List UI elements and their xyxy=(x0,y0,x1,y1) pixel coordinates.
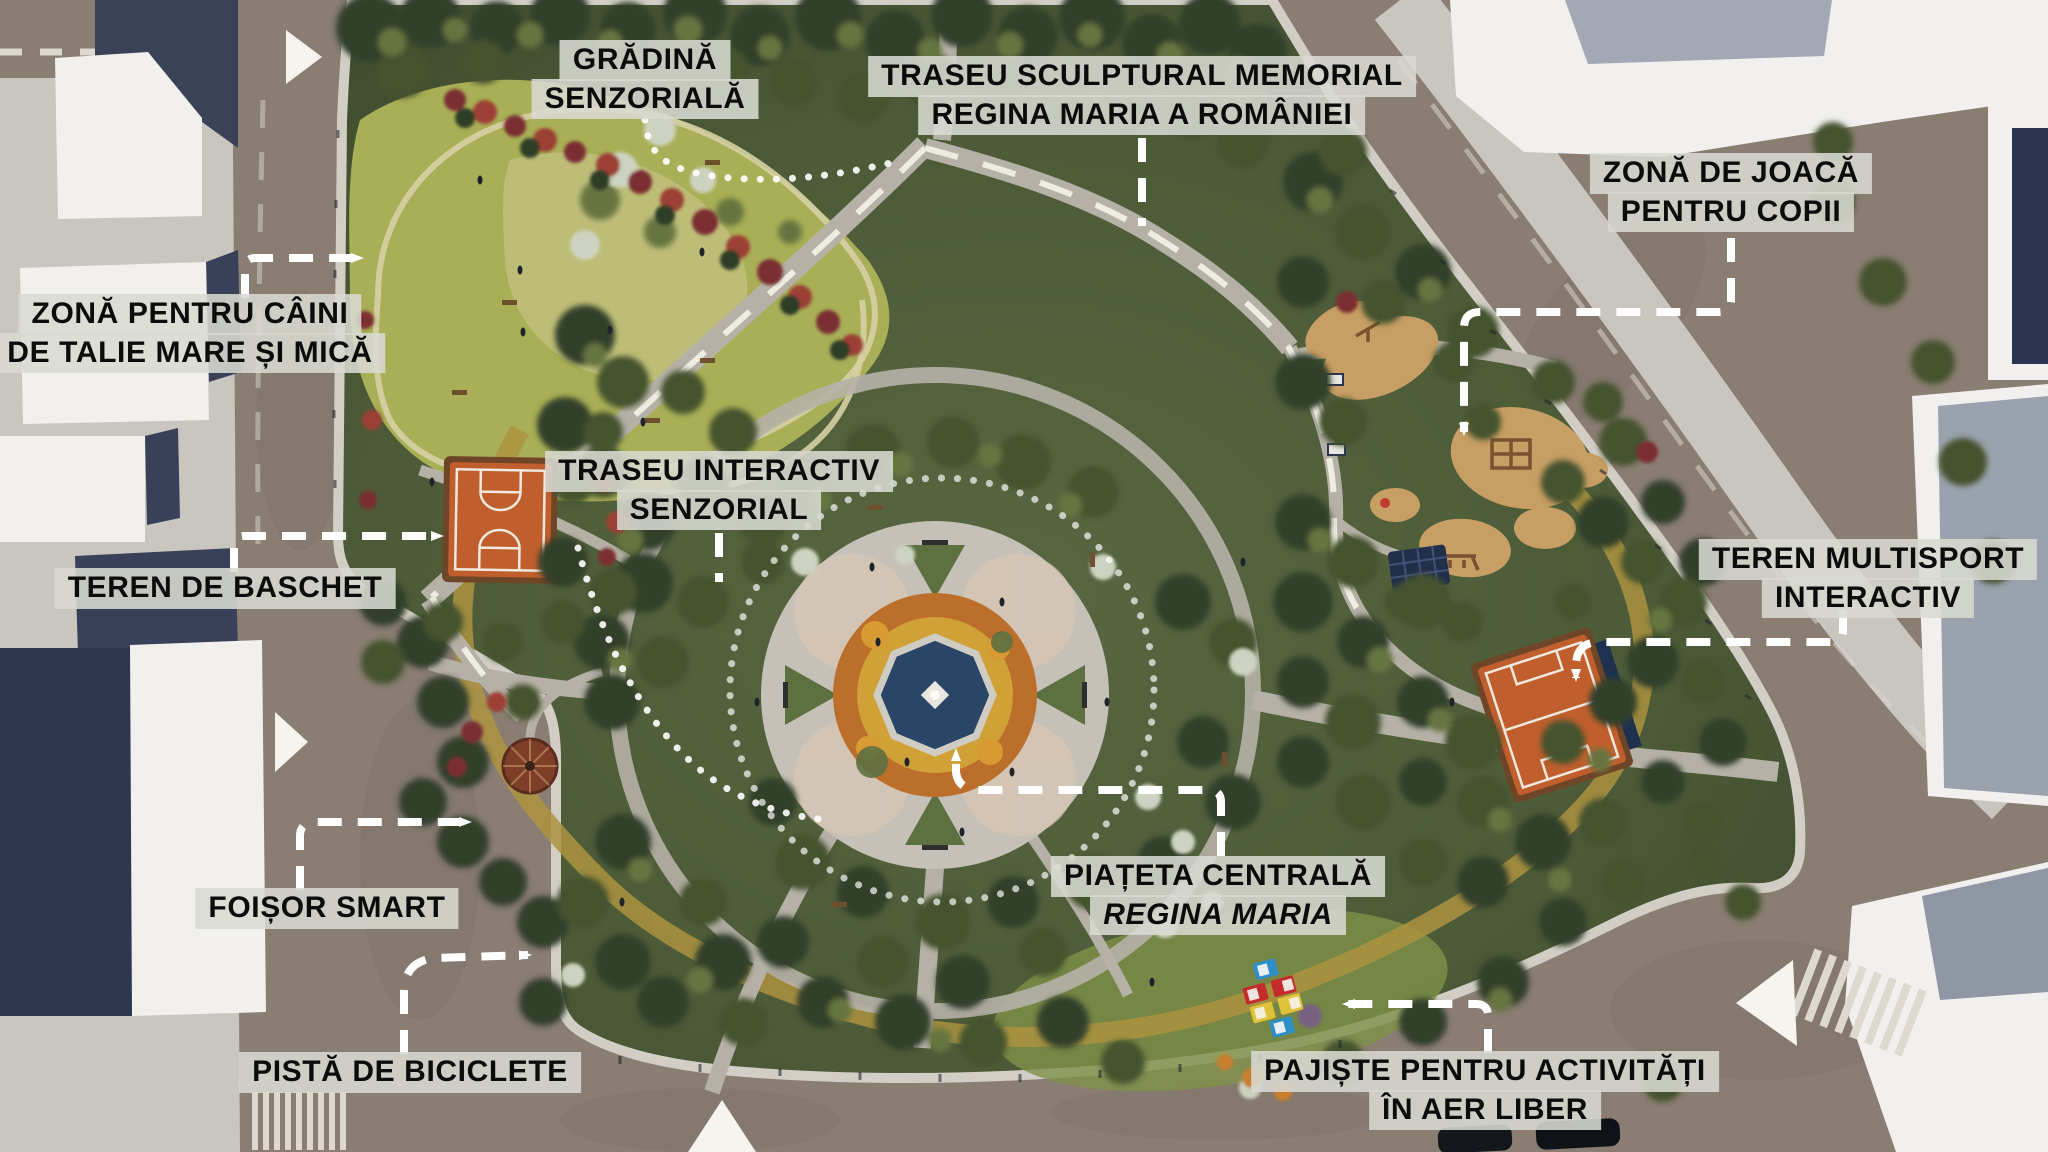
park-aerial-render xyxy=(0,0,2048,1152)
smart-gazebo xyxy=(503,739,557,793)
crosswalk-bottom-left xyxy=(252,1092,346,1150)
park-masterplan-screenshot: GRĂDINĂ SENZORIALĂ TRASEU SCULPTURAL MEM… xyxy=(0,0,2048,1152)
